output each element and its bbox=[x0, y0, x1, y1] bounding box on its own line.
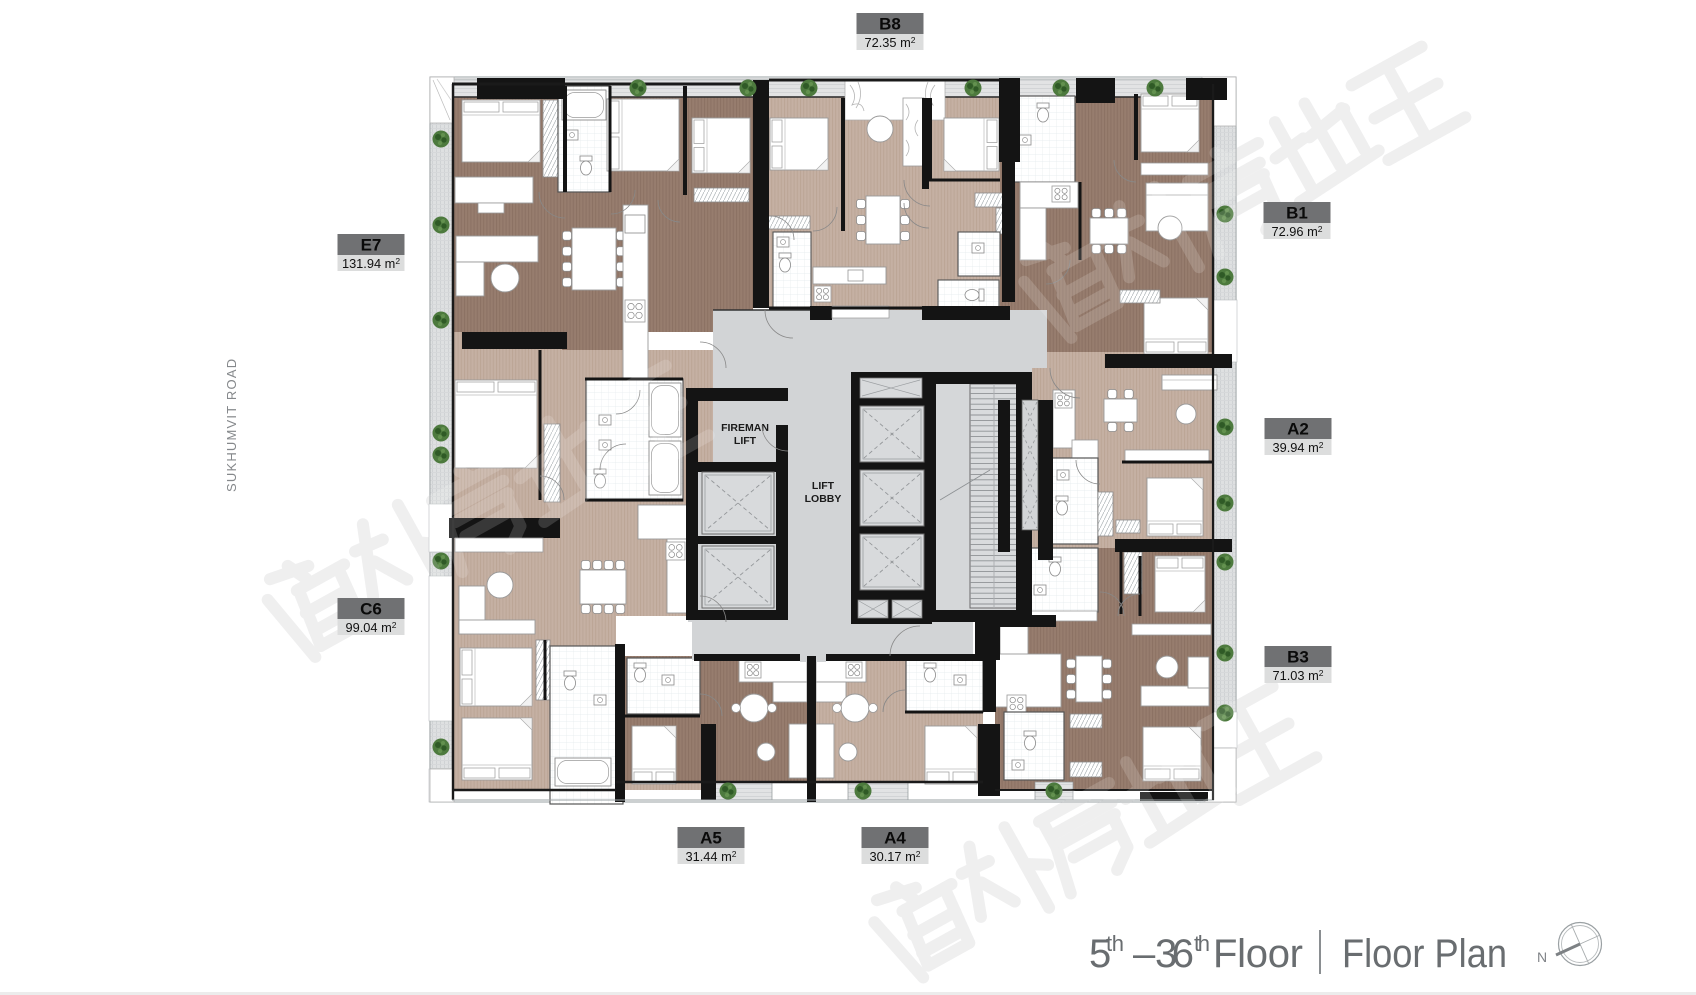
svg-text:SUKHUMVIT ROAD: SUKHUMVIT ROAD bbox=[224, 358, 239, 492]
svg-text:th: th bbox=[1106, 931, 1124, 956]
svg-text:A2: A2 bbox=[1287, 420, 1309, 439]
svg-text:–: – bbox=[1133, 932, 1156, 976]
svg-text:39.94 m2: 39.94 m2 bbox=[1273, 440, 1324, 455]
svg-text:FIREMAN: FIREMAN bbox=[721, 422, 769, 434]
svg-text:A4: A4 bbox=[884, 829, 906, 848]
svg-text:131.94 m2: 131.94 m2 bbox=[342, 256, 400, 271]
svg-text:72.96 m2: 72.96 m2 bbox=[1272, 224, 1323, 239]
svg-text:LIFT: LIFT bbox=[812, 480, 835, 492]
svg-text:th: th bbox=[1194, 931, 1210, 956]
svg-text:B8: B8 bbox=[879, 15, 901, 34]
svg-text:Floor: Floor bbox=[1213, 932, 1303, 976]
svg-text:C6: C6 bbox=[360, 600, 382, 619]
svg-text:LIFT: LIFT bbox=[734, 435, 757, 447]
svg-text:A5: A5 bbox=[700, 829, 722, 848]
svg-text:Floor Plan: Floor Plan bbox=[1342, 932, 1507, 976]
svg-text:B1: B1 bbox=[1286, 204, 1308, 223]
svg-text:31.44 m2: 31.44 m2 bbox=[686, 849, 737, 864]
svg-text:LOBBY: LOBBY bbox=[805, 493, 842, 505]
svg-text:71.03 m2: 71.03 m2 bbox=[1273, 668, 1324, 683]
svg-text:30.17 m2: 30.17 m2 bbox=[870, 849, 921, 864]
svg-text:N: N bbox=[1537, 949, 1547, 965]
svg-text:99.04 m2: 99.04 m2 bbox=[346, 620, 397, 635]
svg-text:72.35 m2: 72.35 m2 bbox=[865, 35, 916, 50]
svg-text:B3: B3 bbox=[1287, 648, 1309, 667]
svg-text:36: 36 bbox=[1155, 932, 1194, 976]
svg-text:E7: E7 bbox=[361, 236, 382, 255]
